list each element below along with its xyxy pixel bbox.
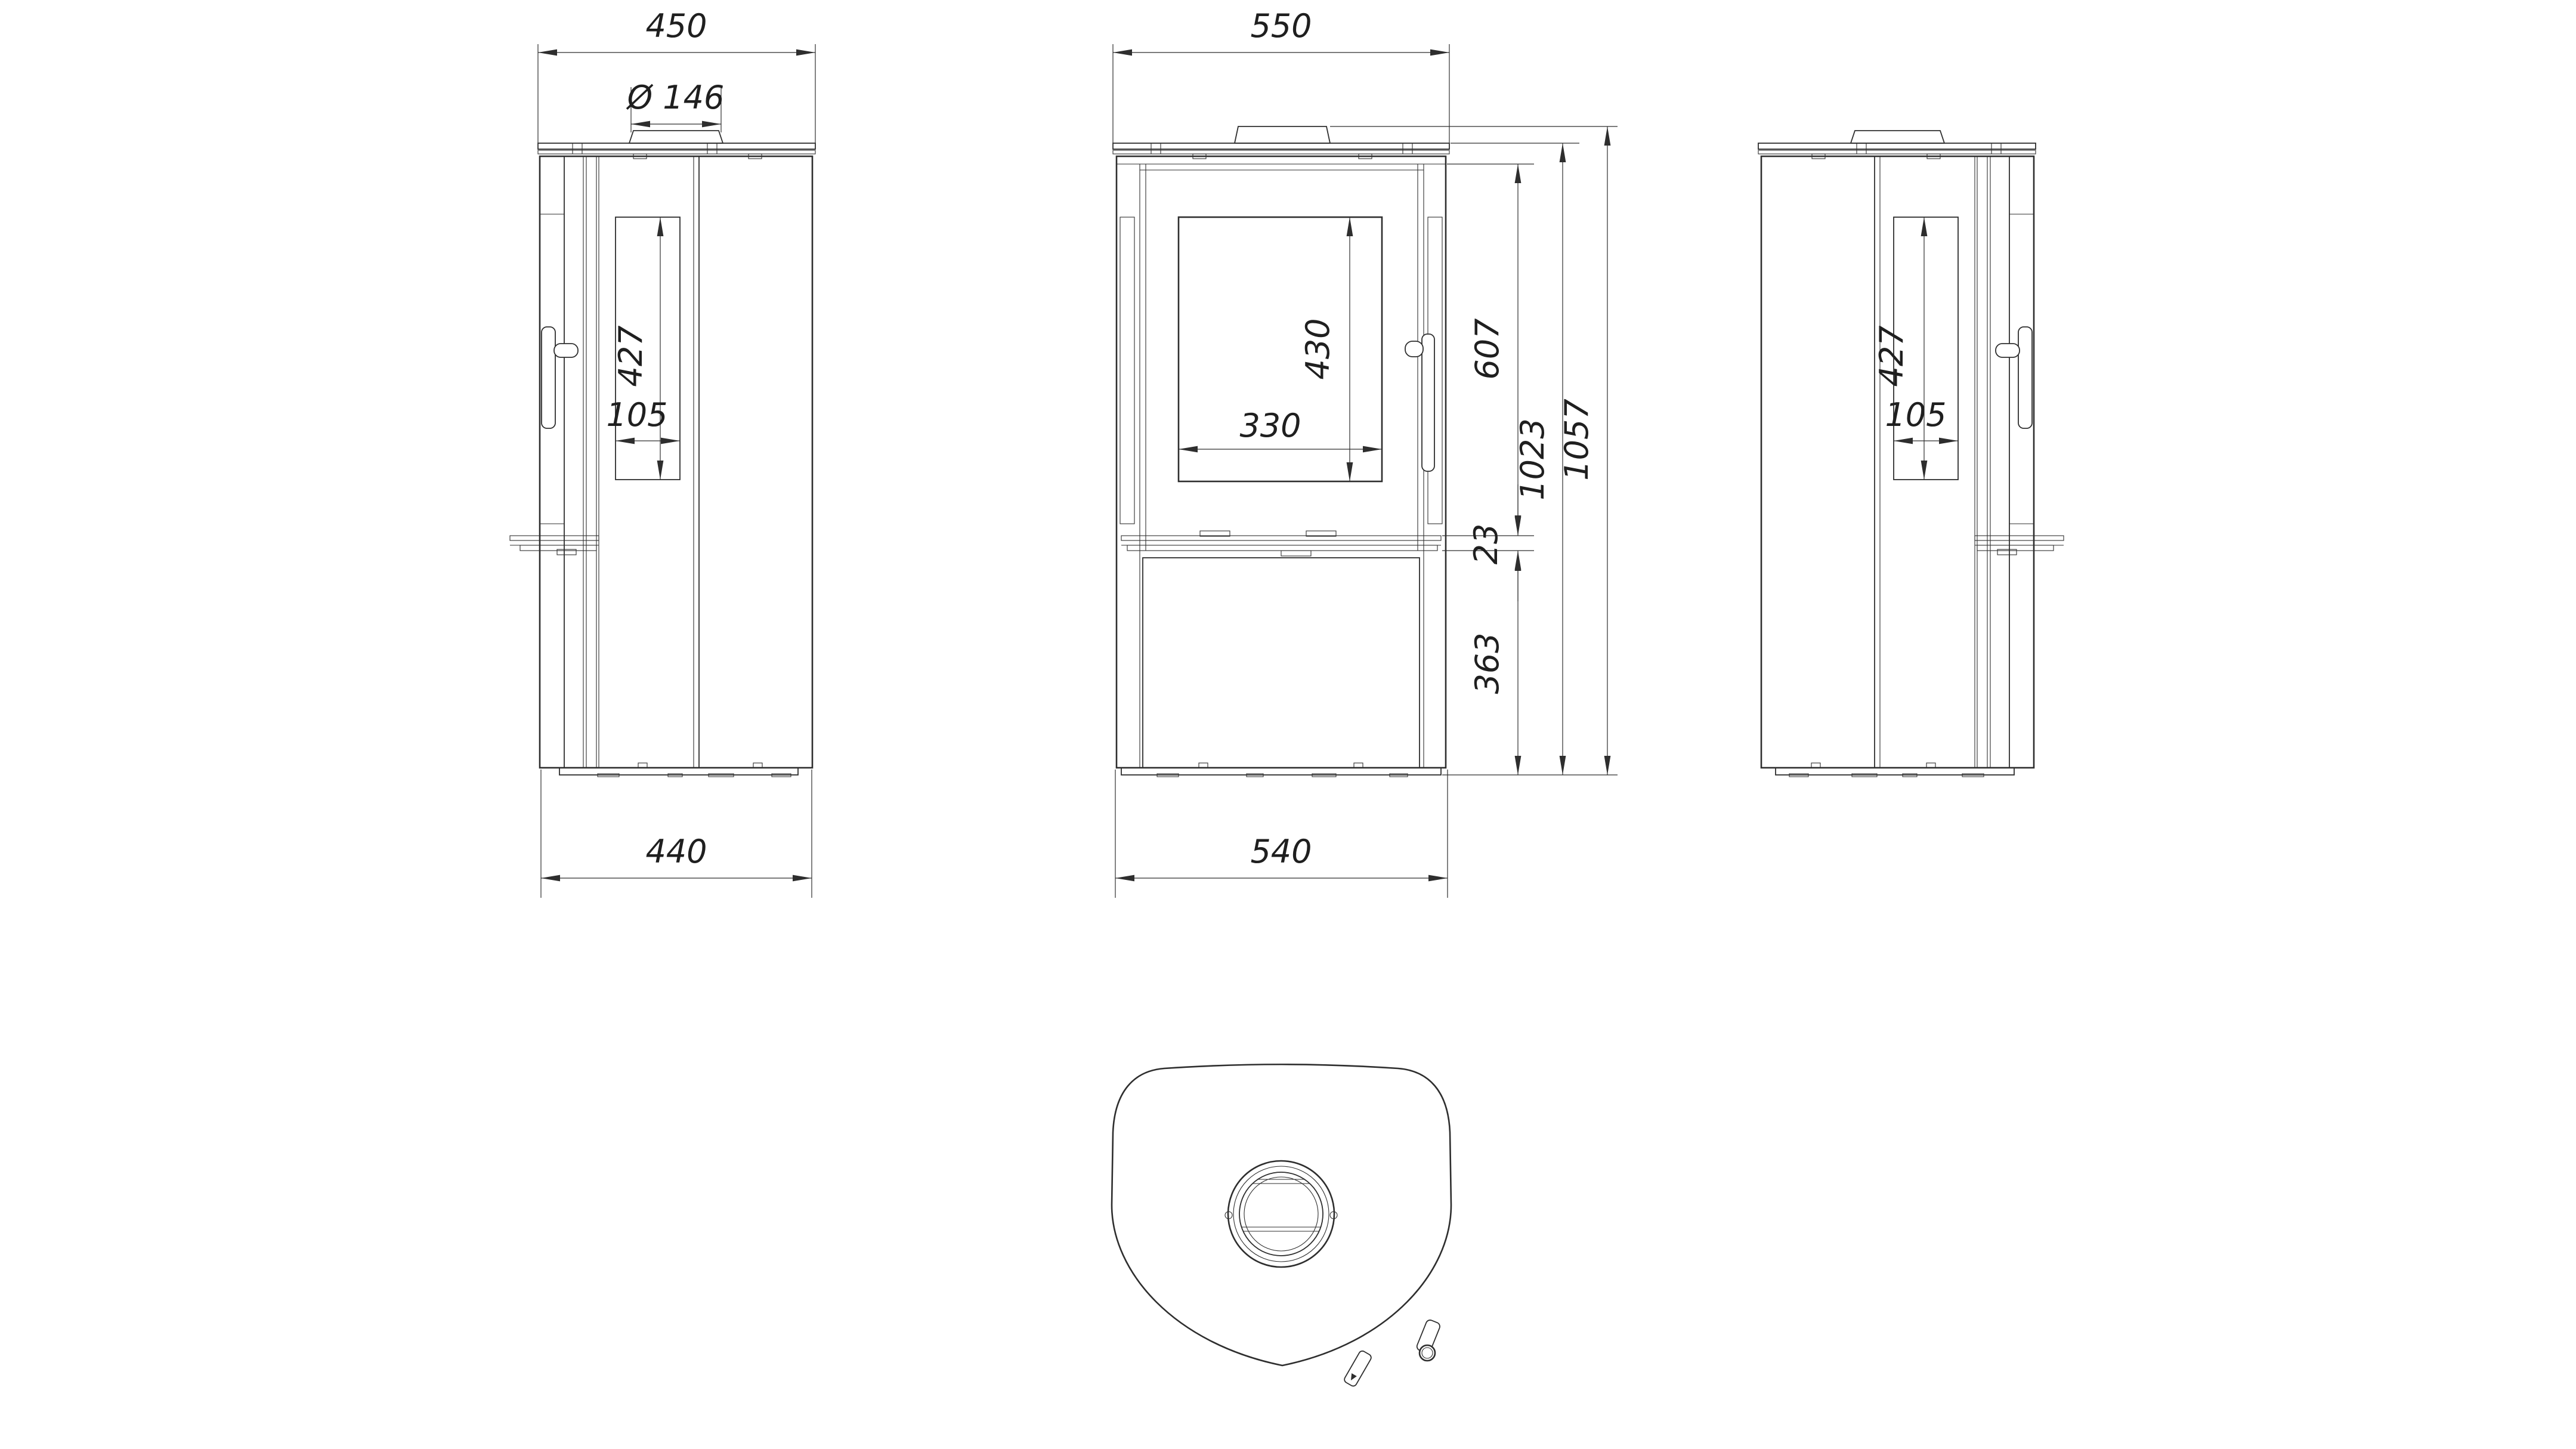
drawing-canvas: 450 Ø 146 (0, 0, 2576, 1449)
flue-collar-right (1851, 131, 1944, 143)
stove-technical-drawing: 450 Ø 146 (0, 0, 2576, 1449)
flue-outlet-top (1225, 1161, 1337, 1267)
flue-collar-front (1235, 126, 1330, 143)
dim-label-flue: Ø 146 (626, 79, 725, 116)
stove-body-right (1761, 156, 2034, 768)
flue-ring-bore (1244, 1177, 1318, 1251)
dim-label-427-right: 427 (1873, 325, 1910, 387)
top-view (1112, 1064, 1451, 1387)
height-dimension-stack: 607 23 363 1023 1057 (1330, 126, 1618, 775)
dim-label-430: 430 (1299, 318, 1337, 379)
right-side-view: 427 105 (1758, 131, 2064, 777)
dim-label-1057: 1057 (1558, 398, 1595, 480)
dim-label-363: 363 (1468, 632, 1506, 694)
dim-label-550: 550 (1250, 7, 1312, 45)
door-handle-side (542, 327, 578, 428)
dim-side-glass-width: 105 (606, 396, 680, 441)
handle-knob (554, 344, 578, 357)
dim-label-330: 330 (1239, 407, 1301, 444)
left-side-view: 450 Ø 146 (510, 7, 815, 898)
handle-bar-front (1422, 334, 1434, 471)
stove-body-front (1117, 156, 1446, 768)
base-right (1776, 763, 2014, 777)
dim-label-607: 607 (1468, 318, 1506, 379)
dim-depth-bottom: 440 (541, 770, 812, 898)
dim-front-glass-width: 330 (1179, 407, 1382, 449)
dim-label-540: 540 (1250, 833, 1312, 870)
handle-knob-right (1996, 344, 2020, 357)
dim-label-1023: 1023 (1514, 418, 1551, 500)
base-side (559, 763, 798, 777)
stove-body-side (540, 156, 812, 768)
dim-label-450: 450 (645, 7, 707, 45)
flue-ring-inner (1239, 1172, 1323, 1256)
base-front (1121, 763, 1441, 777)
ash-lip-shelf-right (1975, 536, 2064, 555)
dim-front-glass-height: 430 (1299, 217, 1350, 481)
dim-side-glass-height: 427 (612, 217, 660, 480)
ash-lip-front (1121, 531, 1441, 556)
handle-knob-front (1405, 341, 1423, 357)
dim-side-glass-height-right: 427 (1873, 217, 1924, 480)
dim-label-105-right: 105 (1885, 396, 1946, 434)
side-glass-strip-left (1120, 217, 1134, 524)
dim-depth-top: 450 (538, 7, 815, 143)
flue-collar (629, 131, 723, 143)
dim-label-105-left: 105 (606, 396, 667, 434)
handle-bar-right (2018, 327, 2032, 428)
flue-ring-mid (1233, 1166, 1329, 1262)
door-handle-right (1996, 327, 2032, 428)
dim-width-top: 550 (1113, 7, 1449, 143)
air-control-lever (1343, 1350, 1372, 1388)
dim-label-427-left: 427 (612, 325, 650, 387)
dim-label-23: 23 (1467, 524, 1505, 565)
lower-panel (1143, 558, 1420, 768)
grate-handle (1416, 1319, 1441, 1361)
dim-label-440: 440 (645, 833, 707, 870)
door-handle-front (1405, 334, 1434, 471)
dim-width-bottom: 540 (1115, 770, 1448, 898)
ash-lip-shelf-side (510, 536, 599, 555)
top-view-outline (1112, 1064, 1451, 1365)
dim-side-glass-width-right: 105 (1885, 396, 1958, 441)
handle-bar (542, 327, 555, 428)
front-view: 550 (1113, 7, 1618, 898)
dim-flue-diameter: Ø 146 (626, 79, 725, 132)
